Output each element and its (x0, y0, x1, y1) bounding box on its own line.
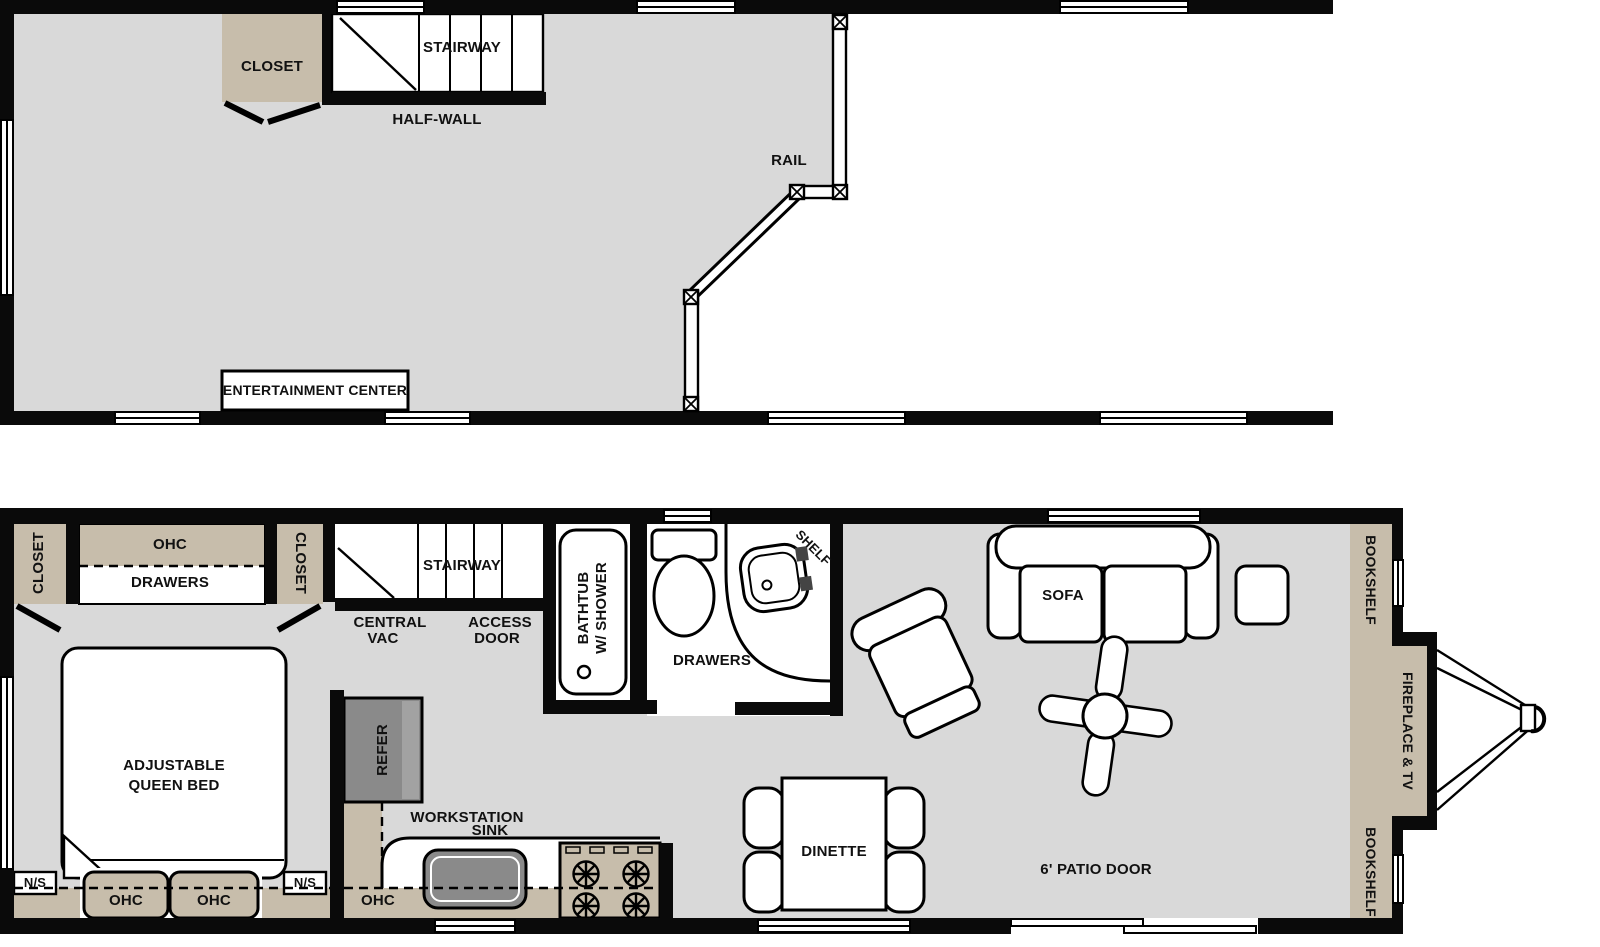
label-bed-line2: QUEEN BED (129, 777, 220, 795)
floorplan-canvas: CLOSET STAIRWAY HALF-WALL RAIL ENTERTAIN… (0, 0, 1600, 947)
label-closet-left: CLOSET (30, 532, 48, 594)
label-loft-stairway: STAIRWAY (423, 39, 501, 57)
toilet (652, 530, 716, 636)
main-floor-plan (0, 508, 1544, 934)
label-workstation-2: SINK (472, 822, 509, 840)
label-loft-closet: CLOSET (241, 58, 303, 76)
label-access-door-2: DOOR (474, 630, 520, 648)
label-ohc-top: OHC (153, 536, 187, 554)
label-bathtub-line1: BATHTUB (575, 562, 593, 654)
dinette-chair (744, 788, 784, 848)
dinette-chair (884, 852, 924, 912)
label-ohc-bed-left: OHC (109, 892, 143, 910)
label-ns-right: N/S (294, 874, 316, 892)
floorplan-drawing (0, 0, 1600, 947)
label-ns-left: N/S (24, 874, 46, 892)
label-rail: RAIL (771, 152, 807, 170)
label-drawers-bedroom: DRAWERS (131, 574, 209, 592)
label-drawers-bath: DRAWERS (673, 652, 751, 670)
label-half-wall: HALF-WALL (392, 111, 481, 129)
label-closet-right: CLOSET (291, 532, 309, 594)
dinette-chair (744, 852, 784, 912)
label-ohc-bed-right: OHC (197, 892, 231, 910)
label-central-vac-2: VAC (367, 630, 398, 648)
kitchen-sink (424, 850, 526, 908)
trailer-hitch (1437, 650, 1544, 810)
end-table (1236, 566, 1288, 624)
label-bathtub-line2: W/ SHOWER (593, 562, 611, 654)
label-fireplace-tv: FIREPLACE & TV (1399, 672, 1417, 790)
label-bed-line1: ADJUSTABLE (123, 757, 225, 775)
label-ohc-kitchen: OHC (361, 892, 395, 910)
stove (560, 843, 660, 919)
label-patio-door: 6' PATIO DOOR (1040, 861, 1151, 879)
label-bookshelf-top: BOOKSHELF (1362, 535, 1380, 625)
tub-drain (578, 666, 590, 678)
label-refer: REFER (374, 724, 392, 776)
label-entertainment-center: ENTERTAINMENT CENTER (223, 381, 407, 399)
label-sofa: SOFA (1042, 587, 1084, 605)
half-wall (332, 92, 546, 105)
upper-floor-plan (0, 0, 1333, 425)
label-dinette: DINETTE (801, 843, 867, 861)
patio-door (1011, 918, 1258, 934)
label-bookshelf-bottom: BOOKSHELF (1362, 827, 1380, 917)
label-bathtub: BATHTUB W/ SHOWER (575, 562, 611, 654)
label-main-stairway: STAIRWAY (423, 557, 501, 575)
dinette-chair (884, 788, 924, 848)
sofa (988, 526, 1218, 642)
